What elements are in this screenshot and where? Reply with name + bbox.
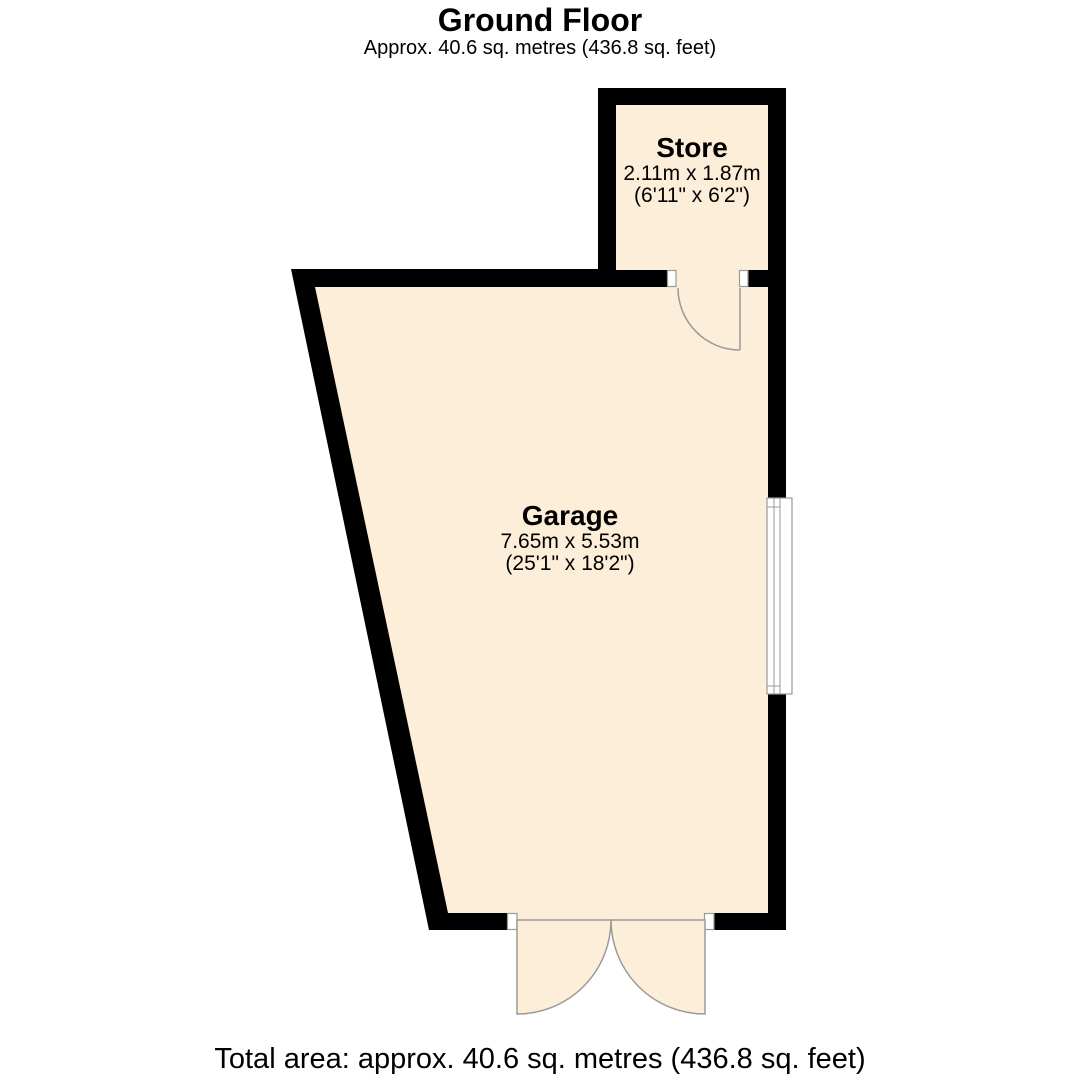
total-area-label: Total area: approx. 40.6 sq. metres (436… [214, 1043, 865, 1075]
store-door-opening [676, 269, 739, 288]
store-door-right-jamb [740, 271, 749, 287]
floorplan-page: Ground Floor Approx. 40.6 sq. metres (43… [0, 0, 1080, 1080]
store-dimensions-imperial: (6'11" x 6'2") [634, 184, 750, 207]
garage-door-right-jamb [705, 914, 715, 930]
floor-subtitle: Approx. 40.6 sq. metres (436.8 sq. feet) [364, 37, 716, 59]
garage-door-left-leaf [517, 920, 611, 1014]
garage-dimensions-metric: 7.65m x 5.53m [501, 530, 640, 553]
store-dimensions-metric: 2.11m x 1.87m [623, 162, 760, 185]
garage-window [767, 498, 792, 694]
garage-floor [315, 287, 768, 913]
room-label-garage: Garage [522, 500, 619, 531]
garage-door-right-leaf [611, 920, 705, 1014]
store-door-left-jamb [668, 271, 677, 287]
garage-dimensions-imperial: (25'1" x 18'2") [505, 552, 634, 575]
garage-door-left-jamb [508, 914, 518, 930]
floorplan-drawing: Ground Floor Approx. 40.6 sq. metres (43… [0, 0, 1080, 1080]
room-label-store: Store [656, 132, 728, 163]
floor-title: Ground Floor [438, 2, 642, 38]
